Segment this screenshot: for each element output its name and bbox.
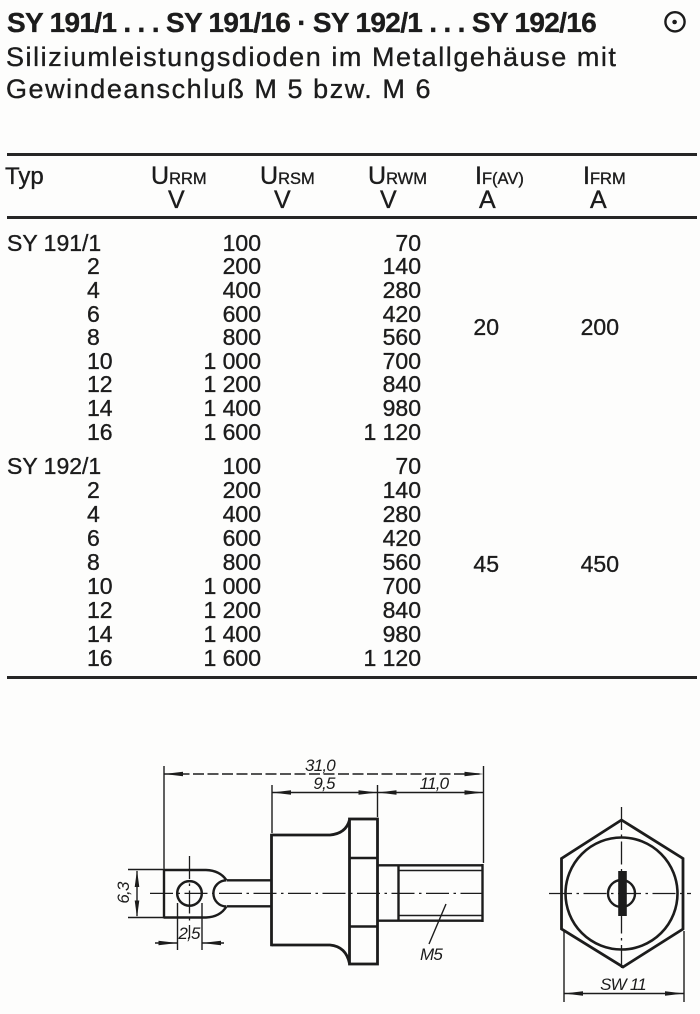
svg-text:SW 11: SW 11 <box>600 975 646 994</box>
svg-text:M5: M5 <box>420 945 443 964</box>
svg-text:6,3: 6,3 <box>114 881 133 904</box>
svg-text:11,0: 11,0 <box>420 774 450 793</box>
svg-text:9,5: 9,5 <box>313 774 336 793</box>
svg-text:31,0: 31,0 <box>305 756 336 775</box>
